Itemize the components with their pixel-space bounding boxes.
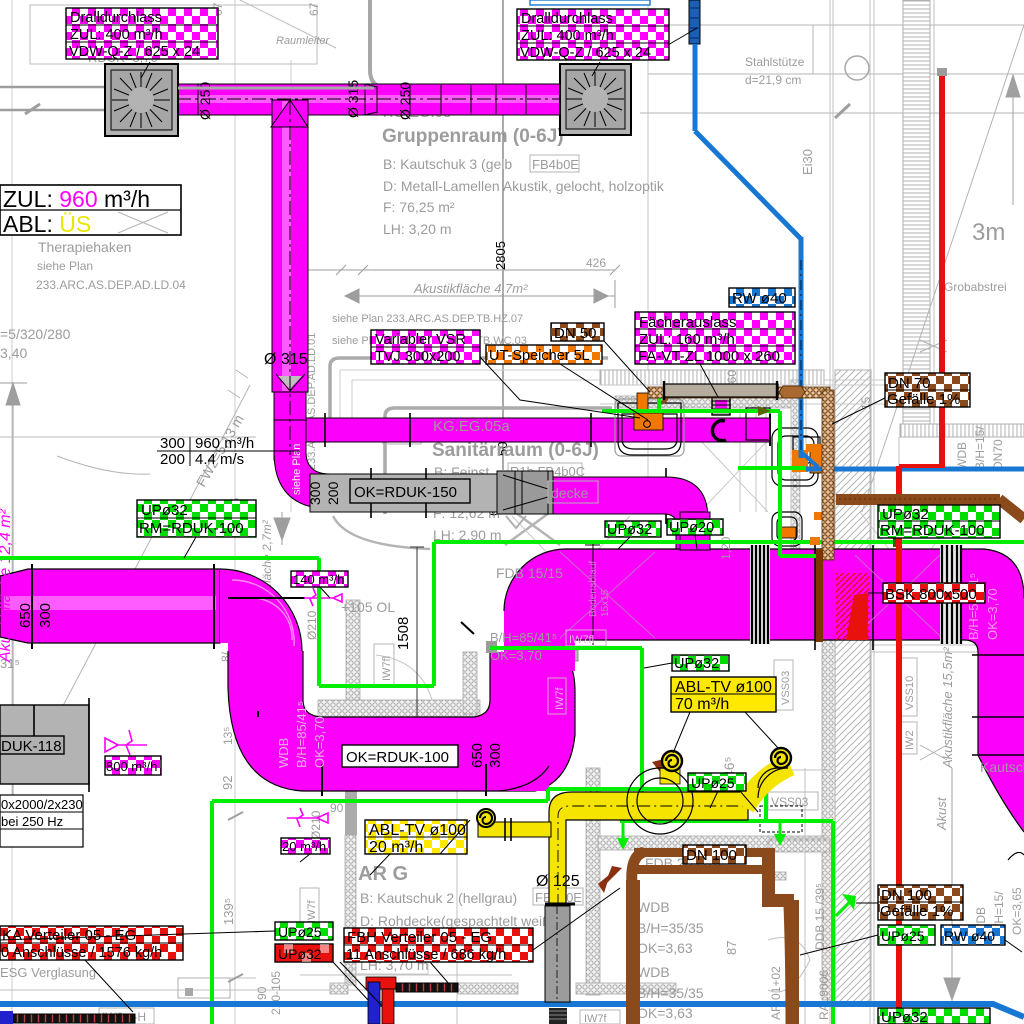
svg-text:UPø32: UPø32 [674,656,719,672]
svg-text:OK=3,70: OK=3,70 [985,588,1000,640]
svg-text:70 m³/h: 70 m³/h [675,696,729,713]
svg-text:OK=RDUK-100: OK=RDUK-100 [346,749,449,766]
svg-text:KG.EG.05a: KG.EG.05a [433,418,510,435]
svg-text:92: 92 [220,776,235,790]
svg-text:1508: 1508 [395,617,412,650]
svg-text:67: 67 [307,2,321,16]
svg-text:Fächerauslass: Fächerauslass [639,314,737,331]
svg-text:Sanitärraum (0-6J): Sanitärraum (0-6J) [432,440,599,461]
svg-text:KA Verteiler 05 - EG: KA Verteiler 05 - EG [2,927,136,944]
svg-text:ZUL: 400 m³/h: ZUL: 400 m³/h [70,27,163,43]
svg-text:426: 426 [586,256,606,270]
svg-text:VSS03: VSS03 [771,795,809,809]
svg-text:Akustikfläche 15,5m²: Akustikfläche 15,5m² [940,647,955,769]
svg-text:Ø 125: Ø 125 [536,873,580,890]
svg-text:Akustikfläche 12,4 m²: Akustikfläche 12,4 m² [0,508,14,663]
svg-text:200: 200 [325,481,341,505]
svg-text:Kautsch: Kautsch [980,759,1024,775]
svg-text:DDB 15 /39⁵: DDB 15 /39⁵ [813,883,827,950]
svg-text:BSK 800x500: BSK 800x500 [885,586,977,603]
svg-text:20 m³/h: 20 m³/h [282,839,326,854]
svg-text:IW7fl: IW7fl [381,656,393,681]
svg-text:139⁵: 139⁵ [221,898,236,925]
svg-text:Ø 315: Ø 315 [264,351,308,368]
svg-text:decke: decke [551,485,589,501]
svg-text:FB4b0E: FB4b0E [532,157,579,172]
svg-text:90: 90 [330,801,344,815]
svg-text:DN 100: DN 100 [881,887,932,904]
svg-text:siehe Plan: siehe Plan [37,259,93,273]
svg-text:DUK-118: DUK-118 [1,738,62,755]
svg-text:WDB: WDB [637,964,670,980]
svg-text:B/H=35/35: B/H=35/35 [637,920,704,936]
svg-text:DN 50: DN 50 [554,325,597,342]
svg-text:VDW-Q-Z / 625 x 24: VDW-Q-Z / 625 x 24 [69,44,200,60]
svg-text:UPø32: UPø32 [141,502,188,519]
svg-text:Akust: Akust [934,796,949,831]
svg-text:UPø32: UPø32 [881,1009,928,1024]
svg-text:LH: 3,20 m: LH: 3,20 m [383,221,451,237]
svg-text:20 m³/h: 20 m³/h [369,839,423,856]
svg-text:300: 300 [487,743,504,768]
svg-text:TVJ 300x200: TVJ 300x200 [375,349,460,365]
svg-text:VSS03: VSS03 [780,671,792,705]
svg-text:RW ø40: RW ø40 [732,290,787,307]
svg-text:90: 90 [255,986,269,1000]
svg-text:FDB 15/15: FDB 15/15 [496,565,563,581]
svg-text:Ei30: Ei30 [800,149,815,175]
svg-text:F: 76,25 m²: F: 76,25 m² [383,199,455,215]
svg-text:OK=3,63: OK=3,63 [637,1005,693,1021]
svg-text:IW7f: IW7f [306,899,318,923]
svg-text:ABL: ÜS: ABL: ÜS [3,211,91,237]
svg-text:Gefälle 1%: Gefälle 1% [887,391,960,408]
svg-text:Ø 250: Ø 250 [397,82,413,120]
svg-text:210-105: 210-105 [269,971,283,1015]
svg-text:OK=RDUK-150: OK=RDUK-150 [354,484,457,501]
svg-text:DN70: DN70 [991,439,1005,470]
svg-text:140 m³/h: 140 m³/h [293,572,344,587]
svg-text:200: 200 [160,451,185,468]
svg-text:D: Rohdecke(gespachtelt weiß): D: Rohdecke(gespachtelt weiß) [360,913,555,929]
svg-text:3m: 3m [972,219,1005,246]
svg-text:Therapiehaken: Therapiehaken [38,239,131,255]
svg-text:OK=3,65: OK=3,65 [1010,887,1024,935]
svg-text:IW7fl: IW7fl [569,634,594,646]
svg-text:300: 300 [160,435,185,452]
svg-text:UPø25: UPø25 [881,928,925,944]
svg-text:0x2000/2x230: 0x2000/2x230 [1,797,83,812]
svg-text:FBH Verteiler 05 - EG: FBH Verteiler 05 - EG [347,929,492,946]
svg-text:AR G: AR G [358,863,408,885]
svg-text:ABL-TV ø100: ABL-TV ø100 [369,822,466,839]
svg-text:Gefälle 1%: Gefälle 1% [880,903,953,920]
svg-text:87: 87 [724,941,739,955]
svg-text:Dralldurchlass: Dralldurchlass [70,10,162,26]
svg-text:WDB: WDB [637,899,670,915]
svg-text:AR.01+02: AR.01+02 [769,966,783,1020]
svg-text:RM=RDUK-100: RM=RDUK-100 [880,522,985,539]
svg-text:WDB: WDB [276,738,291,768]
svg-text:RM=RDUK-100: RM=RDUK-100 [139,520,244,537]
svg-text:4.4 m/s: 4.4 m/s [195,451,244,468]
svg-text:3,40: 3,40 [0,345,27,361]
svg-text:15: 15 [859,396,873,410]
svg-text:300: 300 [307,481,323,505]
svg-text:OK=3,70: OK=3,70 [490,648,542,663]
svg-text:ZUL: 400 m³/h: ZUL: 400 m³/h [521,28,614,44]
svg-text:Dralldurchlass: Dralldurchlass [521,11,613,27]
svg-text:11 Anschlüsse / 686 kg/h: 11 Anschlüsse / 686 kg/h [346,947,506,963]
svg-text:UPø25: UPø25 [278,924,322,940]
svg-text:300: 300 [37,603,54,628]
svg-text:bei 250 Hz: bei 250 Hz [1,814,63,829]
svg-text:Stahlstütze: Stahlstütze [745,55,805,69]
svg-text:650: 650 [469,743,486,768]
svg-text:IW2: IW2 [904,730,916,750]
svg-text:DN 100: DN 100 [686,847,737,864]
svg-text:RAL9006: RAL9006 [817,970,831,1020]
svg-text:0 Anschlüsse / 1576 kg/h: 0 Anschlüsse / 1576 kg/h [1,945,162,961]
svg-text:UPø20: UPø20 [669,520,714,536]
svg-text:IW7f: IW7f [584,1013,608,1024]
svg-text:B/H=35/35: B/H=35/35 [637,985,704,1001]
svg-text:800 m³/h: 800 m³/h [106,759,157,774]
svg-text:OK=3,63: OK=3,63 [637,940,693,956]
svg-text:B/H=85/41⁵: B/H=85/41⁵ [490,630,557,645]
svg-text:650: 650 [17,603,34,628]
svg-text:siehe Plan 233.ARC.AS.DEP.TB.H: siehe Plan 233.ARC.AS.DEP.TB.HZ.07 [332,313,523,325]
svg-text:233.ARC.AS.DEP.AD.LD.04: 233.ARC.AS.DEP.AD.LD.04 [36,278,186,292]
svg-text:UT-Speicher 5L: UT-Speicher 5L [489,348,590,364]
svg-text:RW ø40: RW ø40 [944,928,995,944]
svg-text:Raumleiter: Raumleiter [276,35,331,47]
svg-text:VDW-Q-Z / 625 x 24: VDW-Q-Z / 625 x 24 [520,45,651,61]
svg-text:Variabler VSR: Variabler VSR [375,332,466,348]
svg-text:UPø32: UPø32 [607,522,652,538]
svg-text:B: Kautschuk 2 (hellgrau): B: Kautschuk 2 (hellgrau) [360,890,517,906]
svg-text:D: Metall-Lamellen Akustik, ge: D: Metall-Lamellen Akustik, gelocht, hol… [383,178,665,194]
svg-text:Bodenablauf: Bodenablauf [588,561,599,617]
svg-text:UPø32: UPø32 [882,506,929,523]
svg-text:B: Kautschuk 3 (gelb: B: Kautschuk 3 (gelb [383,156,512,172]
svg-text:1,20: 1,20 [719,536,733,560]
svg-text:ESG Verglasung: ESG Verglasung [0,965,96,980]
svg-text:IW7f: IW7f [554,686,566,710]
svg-text:DN 70: DN 70 [888,375,931,392]
svg-text:UPø32: UPø32 [278,946,322,962]
svg-text:+105 OL: +105 OL [341,599,395,615]
svg-text:15x15: 15x15 [600,589,611,617]
svg-text:VSS10: VSS10 [904,676,916,710]
svg-text:WDB: WDB [955,442,969,470]
svg-text:Ø210: Ø210 [309,810,323,840]
svg-text:=5/320/280: =5/320/280 [0,326,71,342]
svg-text:OK=3,70: OK=3,70 [312,716,327,768]
svg-text:960 m³/h: 960 m³/h [195,435,254,452]
svg-text:B/H=85/41⁵: B/H=85/41⁵ [294,701,309,768]
svg-text:ZUL: 960 m³/h: ZUL: 960 m³/h [3,186,150,212]
svg-text:Ø210: Ø210 [305,610,319,640]
svg-text:ZUL: 160 m³/h: ZUL: 160 m³/h [639,331,735,348]
svg-text:Gruppenraum (0-6J): Gruppenraum (0-6J) [382,126,564,147]
svg-text:d=21,9 cm: d=21,9 cm [745,73,801,87]
svg-text:Akustikfläche 4,7m²: Akustikfläche 4,7m² [413,281,528,296]
svg-text:Grobabstrei: Grobabstrei [944,280,1007,294]
svg-text:ABL-TV ø100: ABL-TV ø100 [675,679,772,696]
svg-text:2805: 2805 [493,241,508,270]
svg-text:FA-VT-ZL 1000 x 260: FA-VT-ZL 1000 x 260 [638,348,780,365]
svg-text:B/H=15/: B/H=15/ [973,426,987,470]
svg-text:Ø 315: Ø 315 [345,80,361,118]
svg-text:UPø25: UPø25 [691,775,735,791]
